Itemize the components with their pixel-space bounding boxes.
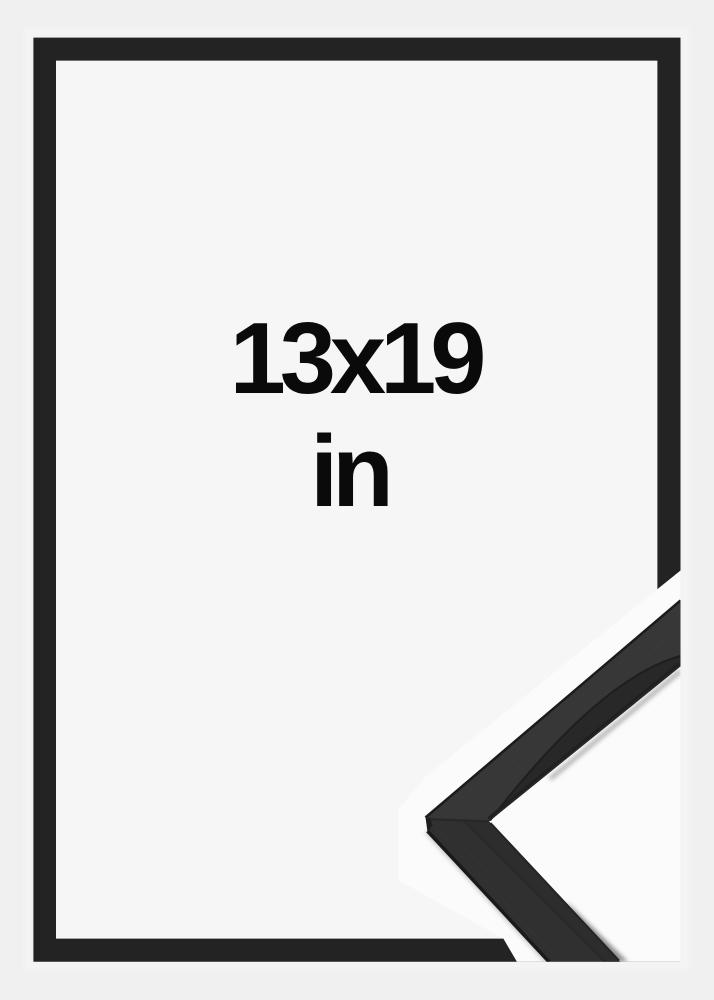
svg-text:13x19: 13x19 <box>230 303 484 415</box>
svg-text:in: in <box>310 416 388 528</box>
